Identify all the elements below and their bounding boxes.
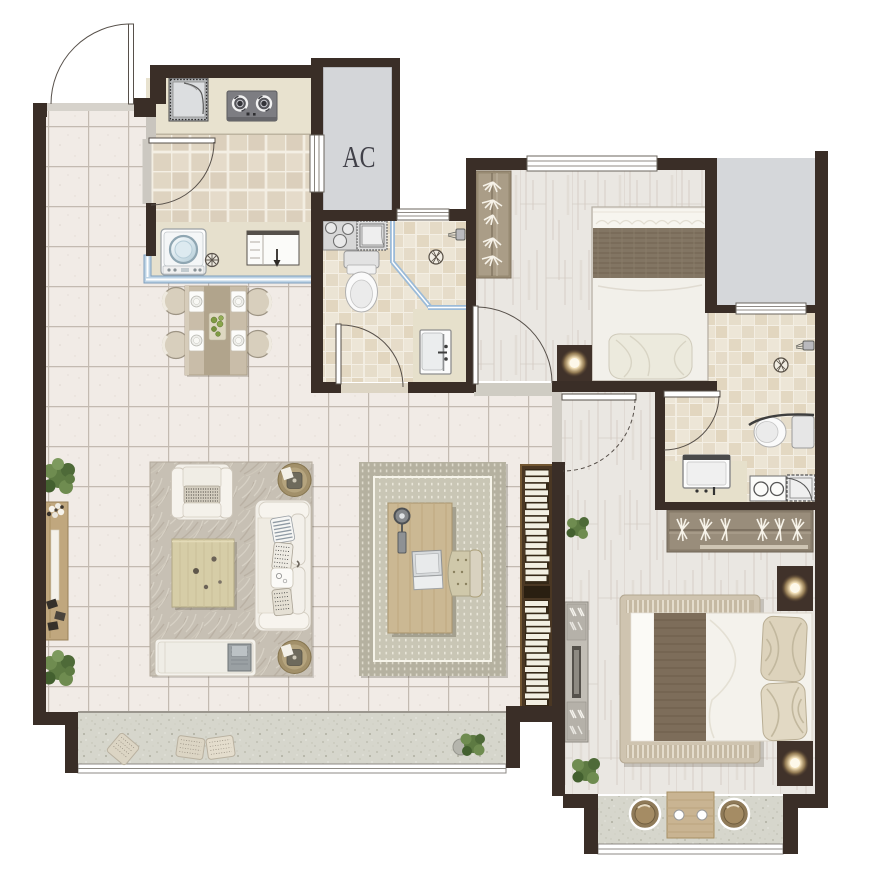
svg-text:AC: AC bbox=[343, 139, 376, 174]
